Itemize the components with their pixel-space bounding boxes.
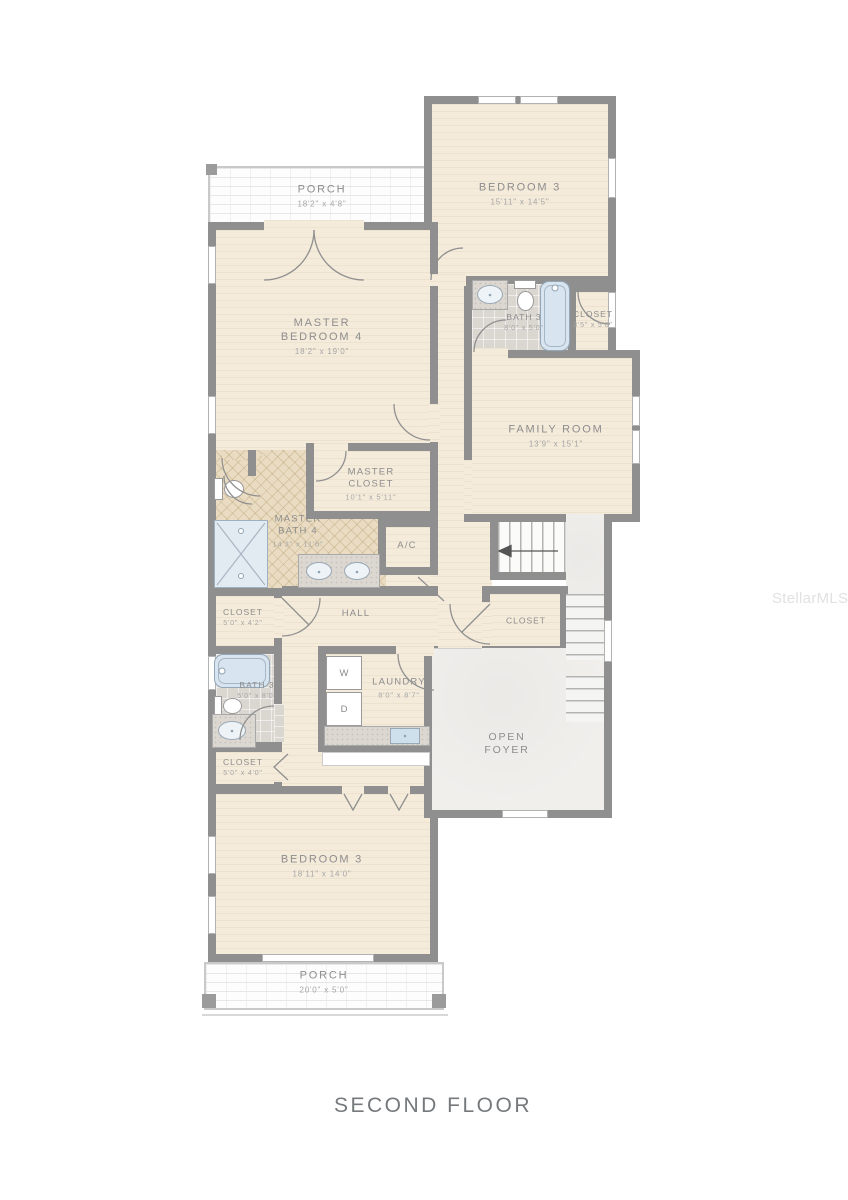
toilet-icon	[214, 696, 222, 716]
toilet-nook-wall	[248, 450, 256, 476]
door-opening	[388, 786, 410, 796]
porch-post	[202, 994, 216, 1008]
label-master-closet: MASTER CLOSET10'1" x 5'11"	[331, 467, 411, 502]
toilet-icon	[214, 478, 223, 500]
label-bath3-lower: BATH 35'0" x 8'0"	[235, 680, 279, 700]
label-closet-stairs: CLOSET	[496, 616, 556, 627]
porch-post	[432, 994, 446, 1008]
floor-plan-canvas: W D	[0, 0, 848, 1200]
overlook-ledge	[322, 752, 430, 766]
toilet-icon	[223, 698, 242, 714]
door-opening	[482, 602, 492, 646]
sink-icon	[344, 562, 370, 580]
window	[208, 896, 216, 934]
foyer-hall-threshold	[432, 648, 482, 649]
label-family-room: FAMILY ROOM13'9" x 15'1"	[481, 424, 631, 449]
label-bedroom3-top: BEDROOM 315'11" x 14'5"	[445, 182, 595, 207]
hall-floor	[280, 594, 438, 654]
porch-ground-line	[202, 1014, 448, 1016]
window	[520, 96, 558, 104]
window	[502, 810, 548, 818]
watermark: StellarMLS	[772, 590, 848, 607]
washer-icon: W	[326, 656, 362, 690]
window	[604, 620, 612, 662]
window	[478, 96, 516, 104]
door-opening	[396, 646, 434, 656]
label-bath3-top: BATH 38'0" x 5'0"	[489, 312, 559, 332]
label-closet-hall: CLOSET5'0" x 4'2"	[213, 607, 273, 627]
label-hall: HALL	[326, 608, 386, 620]
window	[608, 158, 616, 198]
door-opening	[342, 786, 364, 796]
toilet-icon	[514, 280, 536, 289]
label-master-bath: MASTER BATH 414'3" x 11'6"	[263, 514, 333, 549]
window	[632, 396, 640, 426]
door-opening	[222, 450, 262, 460]
staircase-upper-run	[490, 522, 566, 580]
window	[208, 836, 216, 874]
door-opening	[428, 404, 440, 442]
label-closet-lower: CLOSET5'0" x 4'0"	[213, 757, 273, 777]
label-porch-top: PORCH18'2" x 4'8"	[262, 184, 382, 209]
laundry-sink-icon	[390, 728, 420, 744]
label-open-foyer: OPEN FOYER	[471, 731, 543, 757]
door-opening	[314, 443, 348, 453]
door-opening	[274, 752, 284, 782]
floor-title: SECOND FLOOR	[334, 1094, 532, 1118]
sink-icon	[306, 562, 332, 580]
label-ac-closet: A/C	[382, 540, 432, 552]
window	[208, 246, 216, 284]
toilet-icon	[517, 291, 534, 311]
dryer-icon: D	[326, 692, 362, 726]
door-opening	[274, 704, 284, 742]
staircase-right-run-upper	[566, 594, 604, 660]
door-opening	[472, 348, 508, 360]
door-opening	[264, 220, 364, 232]
sink-icon	[218, 721, 246, 740]
window	[262, 954, 374, 962]
window	[632, 430, 640, 464]
toilet-icon	[224, 480, 244, 498]
door-opening	[430, 274, 466, 286]
label-bedroom3-bottom: BEDROOM 318'11" x 14'0"	[242, 854, 402, 879]
staircase-right-run-lower	[566, 676, 604, 722]
label-closet-top: CLOSET3'5" x 5'0"	[570, 309, 616, 329]
label-porch-bottom: PORCH20'0" x 5'0"	[259, 970, 389, 995]
label-laundry: LAUNDRY8'0" x 8'7"	[364, 677, 434, 700]
window	[208, 396, 216, 434]
label-master-bedroom: MASTER BEDROOM 418'2" x 19'0"	[261, 317, 383, 356]
family-room-left-opening	[464, 460, 472, 514]
sink-icon	[477, 285, 503, 304]
shower-icon	[214, 520, 268, 588]
porch-post	[206, 164, 217, 175]
door-opening	[274, 598, 284, 638]
